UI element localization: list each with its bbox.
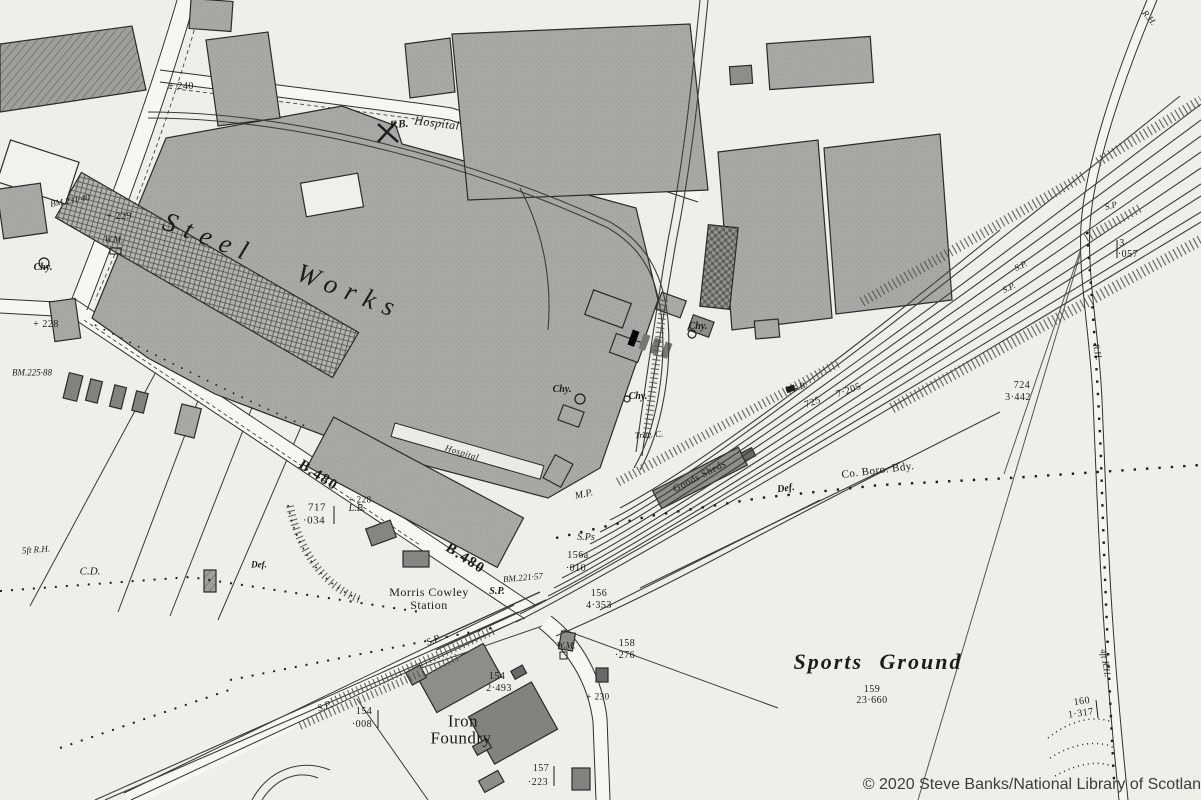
label-sp-1: S.P. bbox=[489, 587, 504, 597]
spot-height-240: + 240 bbox=[168, 82, 194, 92]
label-hospital-top: Hospital bbox=[414, 114, 460, 131]
parcel-154b: 154 bbox=[356, 707, 373, 717]
spot-height-229: + 229 bbox=[106, 212, 132, 222]
parcel-724: 724 bbox=[1014, 381, 1031, 391]
label-sp-3: S.P. bbox=[316, 700, 333, 715]
parcel-159: 159 bbox=[864, 685, 881, 695]
label-morris-cowley: Morris Cowley bbox=[389, 586, 469, 598]
label-cd: C.D. bbox=[80, 567, 101, 578]
label-station: Station bbox=[410, 599, 448, 611]
acreage-158: ·276 bbox=[615, 651, 635, 661]
label-sp-5: S.P. bbox=[1013, 259, 1029, 273]
label-trav-c: Trav. C. bbox=[634, 430, 663, 441]
parcel-154a: 154 bbox=[489, 672, 506, 682]
label-steel-works: Steel Works bbox=[159, 208, 406, 324]
label-4ft-rh: 4ft R.H. bbox=[1098, 648, 1112, 677]
label-fb: F.B. bbox=[389, 119, 409, 132]
parcel-156a: 156a bbox=[567, 551, 588, 561]
label-rh-mid: R.H. bbox=[1091, 343, 1103, 361]
label-lb: L.B. bbox=[349, 504, 366, 514]
label-rh-top: R.H. bbox=[1140, 9, 1158, 27]
acreage-154a: 2·493 bbox=[486, 684, 512, 694]
label-chy-2: Chy. bbox=[553, 385, 572, 395]
label-foundry: Foundry bbox=[430, 730, 491, 747]
label-sb: S.B. bbox=[792, 380, 809, 393]
parcel-717: 717 bbox=[308, 503, 326, 514]
benchmark-231: BM.231·40 bbox=[50, 193, 91, 209]
parcel-3: 3 bbox=[1119, 239, 1125, 249]
label-wm-1: W.M. bbox=[557, 642, 576, 651]
label-co-boro-bdy: Co. Boro. Bdy. bbox=[841, 461, 915, 481]
acreage-725: 7·205 bbox=[835, 382, 863, 400]
label-chy-1: Chy. bbox=[34, 263, 53, 273]
label-sp-6: S.P bbox=[1104, 200, 1118, 212]
label-5ft-rh: 5ft R.H. bbox=[22, 545, 51, 556]
attribution-text: © 2020 Steve Banks/National Library of S… bbox=[863, 776, 1201, 794]
label-sports-ground: Sports Ground bbox=[794, 651, 963, 673]
map-viewport: Steel WorksF.B.HospitalHospitalMorris Co… bbox=[0, 0, 1201, 800]
label-sp-2: S.P. bbox=[425, 634, 442, 649]
acreage-717: ·034 bbox=[303, 516, 325, 527]
spot-height-228a: + 228 bbox=[33, 320, 59, 330]
acreage-160: 1·317 bbox=[1068, 707, 1095, 720]
acreage-3: ·057 bbox=[1118, 250, 1138, 260]
label-iron: Iron bbox=[448, 713, 478, 730]
map-labels-layer: Steel WorksF.B.HospitalHospitalMorris Co… bbox=[0, 0, 1201, 800]
acreage-154b: ·008 bbox=[352, 720, 372, 730]
parcel-725: 725 bbox=[804, 395, 823, 410]
acreage-724: 3·442 bbox=[1005, 393, 1031, 403]
label-def-2: Def. bbox=[251, 561, 267, 570]
label-goods-sheds: Goods Sheds bbox=[672, 459, 728, 494]
label-sp-4: S.P. bbox=[1001, 281, 1017, 295]
acreage-159: 23·660 bbox=[856, 696, 887, 706]
label-hospital-works: Hospital bbox=[444, 444, 480, 463]
label-mp: M.P. bbox=[574, 488, 594, 502]
label-chy-4: Chy. bbox=[689, 322, 708, 332]
label-chy-3: Chy. bbox=[629, 392, 648, 402]
acreage-157: ·223 bbox=[528, 778, 548, 788]
acreage-156: 4·353 bbox=[586, 601, 612, 611]
label-wm-2: W.M. bbox=[105, 236, 124, 245]
label-sps: S.Ps bbox=[577, 533, 595, 543]
benchmark-225: BM.225·88 bbox=[12, 369, 52, 378]
acreage-156a: ·010 bbox=[566, 564, 586, 574]
road-b480-1: B.480 bbox=[296, 458, 341, 494]
spot-height-230: + 230 bbox=[586, 693, 609, 702]
label-def-1: Def. bbox=[777, 483, 796, 495]
benchmark-221: BM.221·57 bbox=[503, 572, 544, 584]
parcel-157: 157 bbox=[533, 764, 550, 774]
parcel-156: 156 bbox=[591, 589, 608, 599]
parcel-158: 158 bbox=[619, 639, 636, 649]
road-b480-2: B.480 bbox=[443, 541, 488, 577]
